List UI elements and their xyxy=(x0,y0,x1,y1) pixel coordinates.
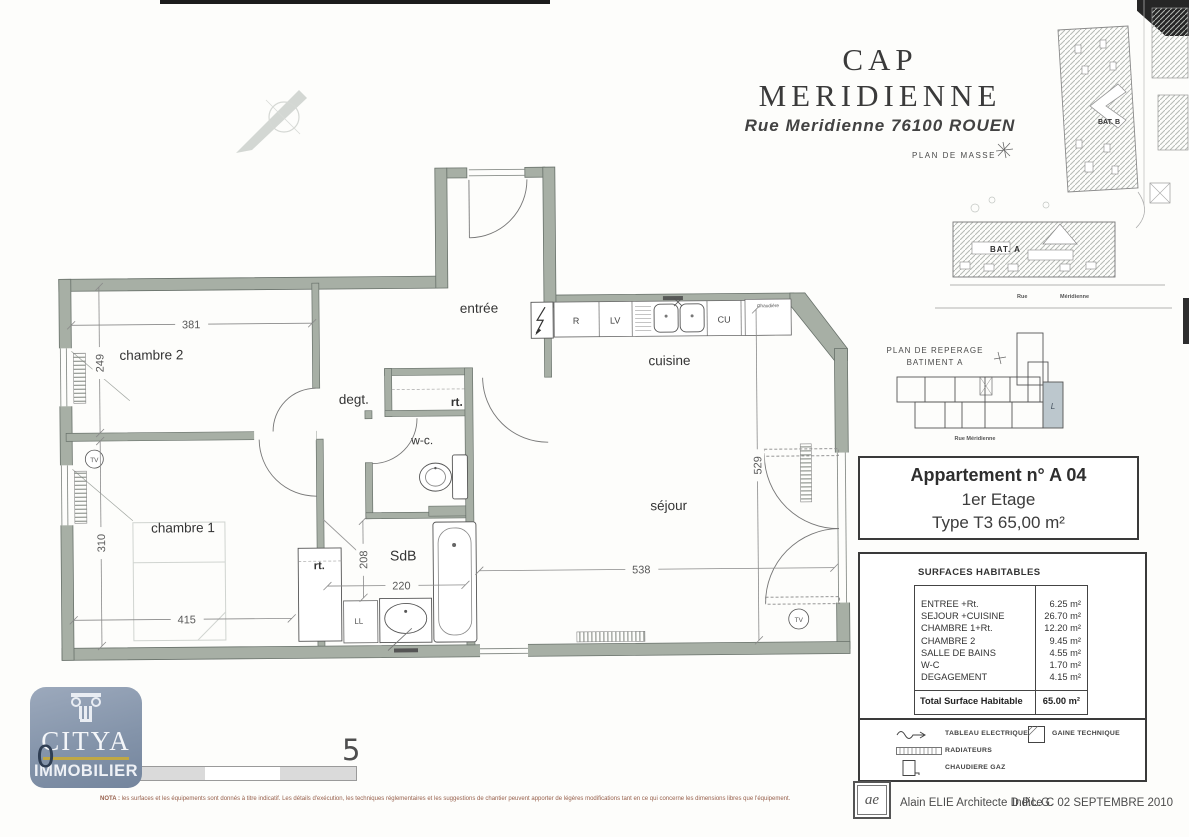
nota-disclaimer: NOTA : les surfaces et les équipements s… xyxy=(100,796,845,802)
svg-text:220: 220 xyxy=(392,580,410,592)
washing-machine-label: LL xyxy=(354,617,364,626)
room-label-rangement2: rt. xyxy=(314,560,325,572)
street: Rue Méridienne xyxy=(935,285,1172,308)
architect-stamp: ae xyxy=(853,781,891,819)
total-label: Total Surface Habitable xyxy=(915,696,1034,706)
bathtub-icon xyxy=(433,522,477,642)
apartment-number: Appartement n° A 04 xyxy=(860,465,1137,486)
row-value: 6.25 m² xyxy=(1035,598,1086,610)
table-total-row: Total Surface Habitable 65.00 m² xyxy=(915,696,1087,706)
svg-text:249: 249 xyxy=(94,354,106,372)
svg-text:415: 415 xyxy=(178,614,196,626)
table-row: CHAMBRE 1+Rt.12.20 m² xyxy=(915,622,1087,634)
legend-label-chaudiere: CHAUDIERE GAZ xyxy=(945,764,1006,771)
legend-box: TABLEAU ELECTRIQUE GAINE TECHNIQUE RADIA… xyxy=(858,718,1147,782)
electric-panel-symbol xyxy=(896,729,930,741)
floor-plan: R LV CU Chaudière xyxy=(0,60,900,700)
svg-text:310: 310 xyxy=(96,534,108,552)
row-value: 4.55 m² xyxy=(1035,647,1086,659)
stamp-initials: ae xyxy=(857,785,887,815)
electric-panel-icon xyxy=(531,302,553,338)
row-label: DEGAGEMENT xyxy=(915,671,1035,683)
brand-gold-rule xyxy=(43,757,129,760)
boiler-label: Chaudière xyxy=(757,303,780,309)
apartment-floor: 1er Etage xyxy=(860,490,1137,510)
street-label-rue: Rue xyxy=(1017,294,1027,300)
toilet-icon xyxy=(419,455,467,499)
svg-text:381: 381 xyxy=(182,319,200,331)
building-bat-b: BAT. B xyxy=(1058,26,1138,192)
radiator-symbol xyxy=(896,747,942,755)
room-label-rangement: rt. xyxy=(451,395,463,409)
row-value: 4.15 m² xyxy=(1035,671,1086,683)
room-label-chambre1: chambre 1 xyxy=(151,520,215,536)
room-label-cuisine: cuisine xyxy=(648,353,690,368)
revision-indice: Indice C 02 SEPTEMBRE 2010 xyxy=(1012,797,1173,809)
site-plan: PLAN DE MASSE BAT. B BAT. A xyxy=(880,0,1189,325)
key-plan-unit-mark: L xyxy=(1051,402,1055,411)
dim-chambre1-width: 415 xyxy=(70,611,296,627)
trees xyxy=(971,197,1049,212)
key-plan-street-label: Rue Méridienne xyxy=(955,436,996,442)
scale-segment xyxy=(205,767,281,780)
dishwasher-label: LV xyxy=(610,316,620,326)
svg-text:529: 529 xyxy=(752,456,764,474)
dim-chambre1-height: 310 xyxy=(93,437,109,650)
key-plan-label1: PLAN DE REPERAGE xyxy=(887,346,984,355)
svg-text:208: 208 xyxy=(358,551,370,569)
legend-label-tableau: TABLEAU ELECTRIQUE xyxy=(945,730,1028,737)
row-label: SALLE DE BAINS xyxy=(915,647,1035,659)
dim-sejour-width: 538 xyxy=(475,561,838,578)
dim-chambre2-height: 249 xyxy=(92,283,107,437)
tv-outlet-label: TV xyxy=(90,457,99,464)
legend-label-radiateurs: RADIATEURS xyxy=(945,747,992,754)
table-row: CHAMBRE 29.45 m² xyxy=(915,635,1087,647)
row-value: 1.70 m² xyxy=(1035,659,1086,671)
surfaces-title: SURFACES HABITABLES xyxy=(918,567,1041,578)
scale-segment xyxy=(280,767,356,780)
gaine-technique-symbol xyxy=(1028,726,1045,743)
row-value: 12.20 m² xyxy=(1035,622,1086,634)
apartment-type: Type T3 65,00 m² xyxy=(860,513,1137,533)
legend-label-gaine: GAINE TECHNIQUE xyxy=(1052,730,1120,737)
fridge-label: R xyxy=(573,316,580,326)
dim-sdb-height: 208 xyxy=(356,517,371,602)
table-row: DEGAGEMENT4.15 m² xyxy=(915,671,1087,683)
row-label: ENTREE +Rt. xyxy=(915,598,1035,610)
nota-prefix: NOTA : xyxy=(100,796,120,802)
table-row: W-C1.70 m² xyxy=(915,659,1087,671)
scan-artifact-top xyxy=(160,0,550,4)
row-value: 9.45 m² xyxy=(1035,635,1086,647)
column-capital-icon xyxy=(68,693,104,723)
washing-machine-icon: LL xyxy=(344,601,378,643)
total-value: 65.00 m² xyxy=(1034,696,1085,706)
key-plan-label2: BATIMENT A xyxy=(907,358,964,367)
boiler-symbol xyxy=(902,760,920,778)
dim-chambre2-width: 381 xyxy=(67,316,316,332)
table-row: SALLE DE BAINS4.55 m² xyxy=(915,647,1087,659)
room-label-sejour: séjour xyxy=(650,498,687,513)
street-label-name: Méridienne xyxy=(1060,294,1089,300)
bat-a-label: BAT. A xyxy=(990,245,1021,254)
room-label-sdb: SdB xyxy=(390,547,417,563)
row-label: CHAMBRE 1+Rt. xyxy=(915,622,1035,634)
room-label-degagement: degt. xyxy=(339,392,369,407)
site-plan-label: PLAN DE MASSE xyxy=(912,151,996,160)
row-label: SEJOUR +CUISINE xyxy=(915,610,1035,622)
tv-outlet-label: TV xyxy=(795,617,804,624)
neighbor-buildings xyxy=(1136,0,1188,228)
north-arrow-small-icon xyxy=(994,352,1006,364)
room-label-wc: w-c. xyxy=(410,433,433,447)
scale-end-label: 5 xyxy=(342,733,360,767)
room-label-chambre2: chambre 2 xyxy=(119,347,183,363)
dim-sejour-height: 529 xyxy=(749,305,766,644)
total-separator xyxy=(915,690,1087,691)
surfaces-table: ENTREE +Rt.6.25 m² SEJOUR +CUISINE26.70 … xyxy=(914,585,1088,715)
surfaces-box: SURFACES HABITABLES ENTREE +Rt.6.25 m² S… xyxy=(858,552,1147,722)
table-row: ENTREE +Rt.6.25 m² xyxy=(915,598,1087,610)
north-arrow-icon xyxy=(996,142,1013,158)
boiler-box: Chaudière xyxy=(745,299,791,335)
hob-label: CU xyxy=(718,315,731,325)
row-value: 26.70 m² xyxy=(1035,610,1086,622)
row-label: W-C xyxy=(915,659,1035,671)
row-label: CHAMBRE 2 xyxy=(915,635,1035,647)
washbasin-icon xyxy=(380,598,432,652)
apartment-info-box: Appartement n° A 04 1er Etage Type T3 65… xyxy=(858,456,1139,540)
building-bat-a: BAT. A xyxy=(953,222,1115,277)
room-label-entree: entrée xyxy=(460,301,498,316)
table-row: SEJOUR +CUISINE26.70 m² xyxy=(915,610,1087,622)
scale-start-label: 0 xyxy=(36,740,55,775)
nota-text: les surfaces et les équipements sont don… xyxy=(120,796,790,802)
compass-icon xyxy=(236,90,307,153)
key-plan: PLAN DE REPERAGE BATIMENT A L Rue Méridi… xyxy=(880,330,1189,455)
svg-text:538: 538 xyxy=(632,564,650,576)
bat-b-label: BAT. B xyxy=(1098,119,1120,126)
